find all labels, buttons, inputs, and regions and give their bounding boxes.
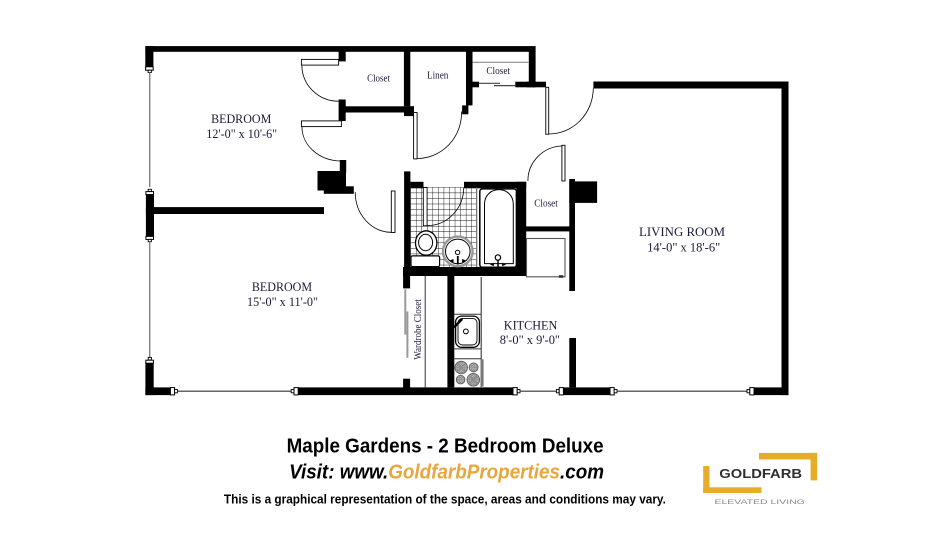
svg-text:LIVING ROOM: LIVING ROOM	[639, 224, 725, 239]
svg-text:Closet: Closet	[486, 66, 510, 77]
svg-text:This is a graphical representa: This is a graphical representation of th…	[224, 491, 666, 506]
svg-text:Wardrobe Closet: Wardrobe Closet	[413, 299, 424, 360]
svg-text:14'-0" x 18'-6": 14'-0" x 18'-6"	[647, 241, 720, 255]
svg-text:Linen: Linen	[427, 70, 449, 81]
svg-text:12'-0" x 10'-6": 12'-0" x 10'-6"	[206, 127, 277, 141]
svg-text:KITCHEN: KITCHEN	[504, 318, 558, 333]
svg-text:8'-0" x 9'-0": 8'-0" x 9'-0"	[500, 333, 560, 347]
svg-text:BEDROOM: BEDROOM	[211, 111, 272, 126]
svg-text:Closet: Closet	[534, 199, 558, 210]
svg-text:BEDROOM: BEDROOM	[252, 279, 313, 294]
svg-text:15'-0" x 11'-0": 15'-0" x 11'-0"	[247, 295, 318, 309]
svg-text:Visit: www.GoldfarbProperties.: Visit: www.GoldfarbProperties.com	[289, 461, 604, 483]
svg-text:Closet: Closet	[367, 74, 390, 85]
svg-text:Maple Gardens - 2 Bedroom Delu: Maple Gardens - 2 Bedroom Deluxe	[287, 436, 604, 458]
svg-text:ELEVATED LIVING: ELEVATED LIVING	[715, 499, 805, 506]
svg-text:GOLDFARB: GOLDFARB	[719, 467, 802, 481]
